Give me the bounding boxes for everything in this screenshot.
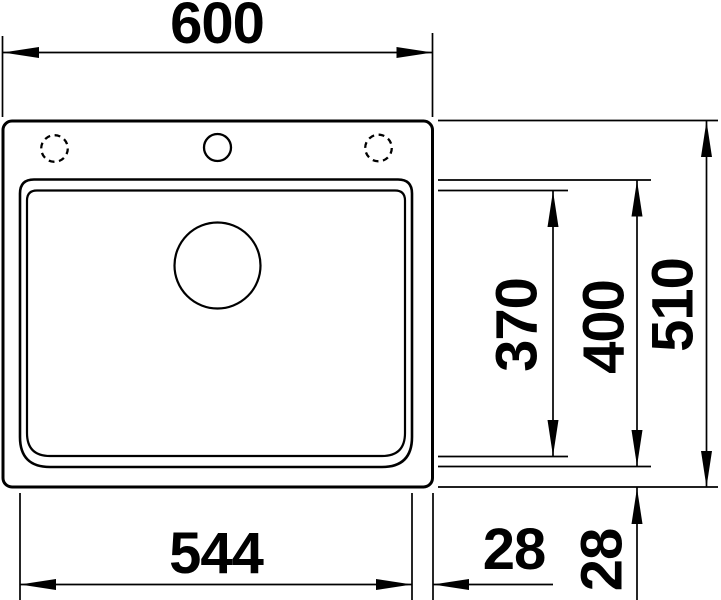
bowl-outer-depth-label: 400 (572, 280, 637, 374)
bottom-edge-gap-label: 28 (570, 529, 635, 592)
overall-width-label: 600 (170, 0, 264, 56)
bowl-width-label: 544 (169, 521, 264, 586)
overall-depth-label: 510 (641, 258, 706, 352)
right-edge-gap-label: 28 (483, 517, 546, 582)
bowl-inner-depth-label: 370 (485, 278, 550, 372)
technical-drawing-canvas: 600 510 400 370 544 (0, 0, 721, 600)
sink-dimension-drawing: 600 510 400 370 544 (0, 0, 721, 600)
